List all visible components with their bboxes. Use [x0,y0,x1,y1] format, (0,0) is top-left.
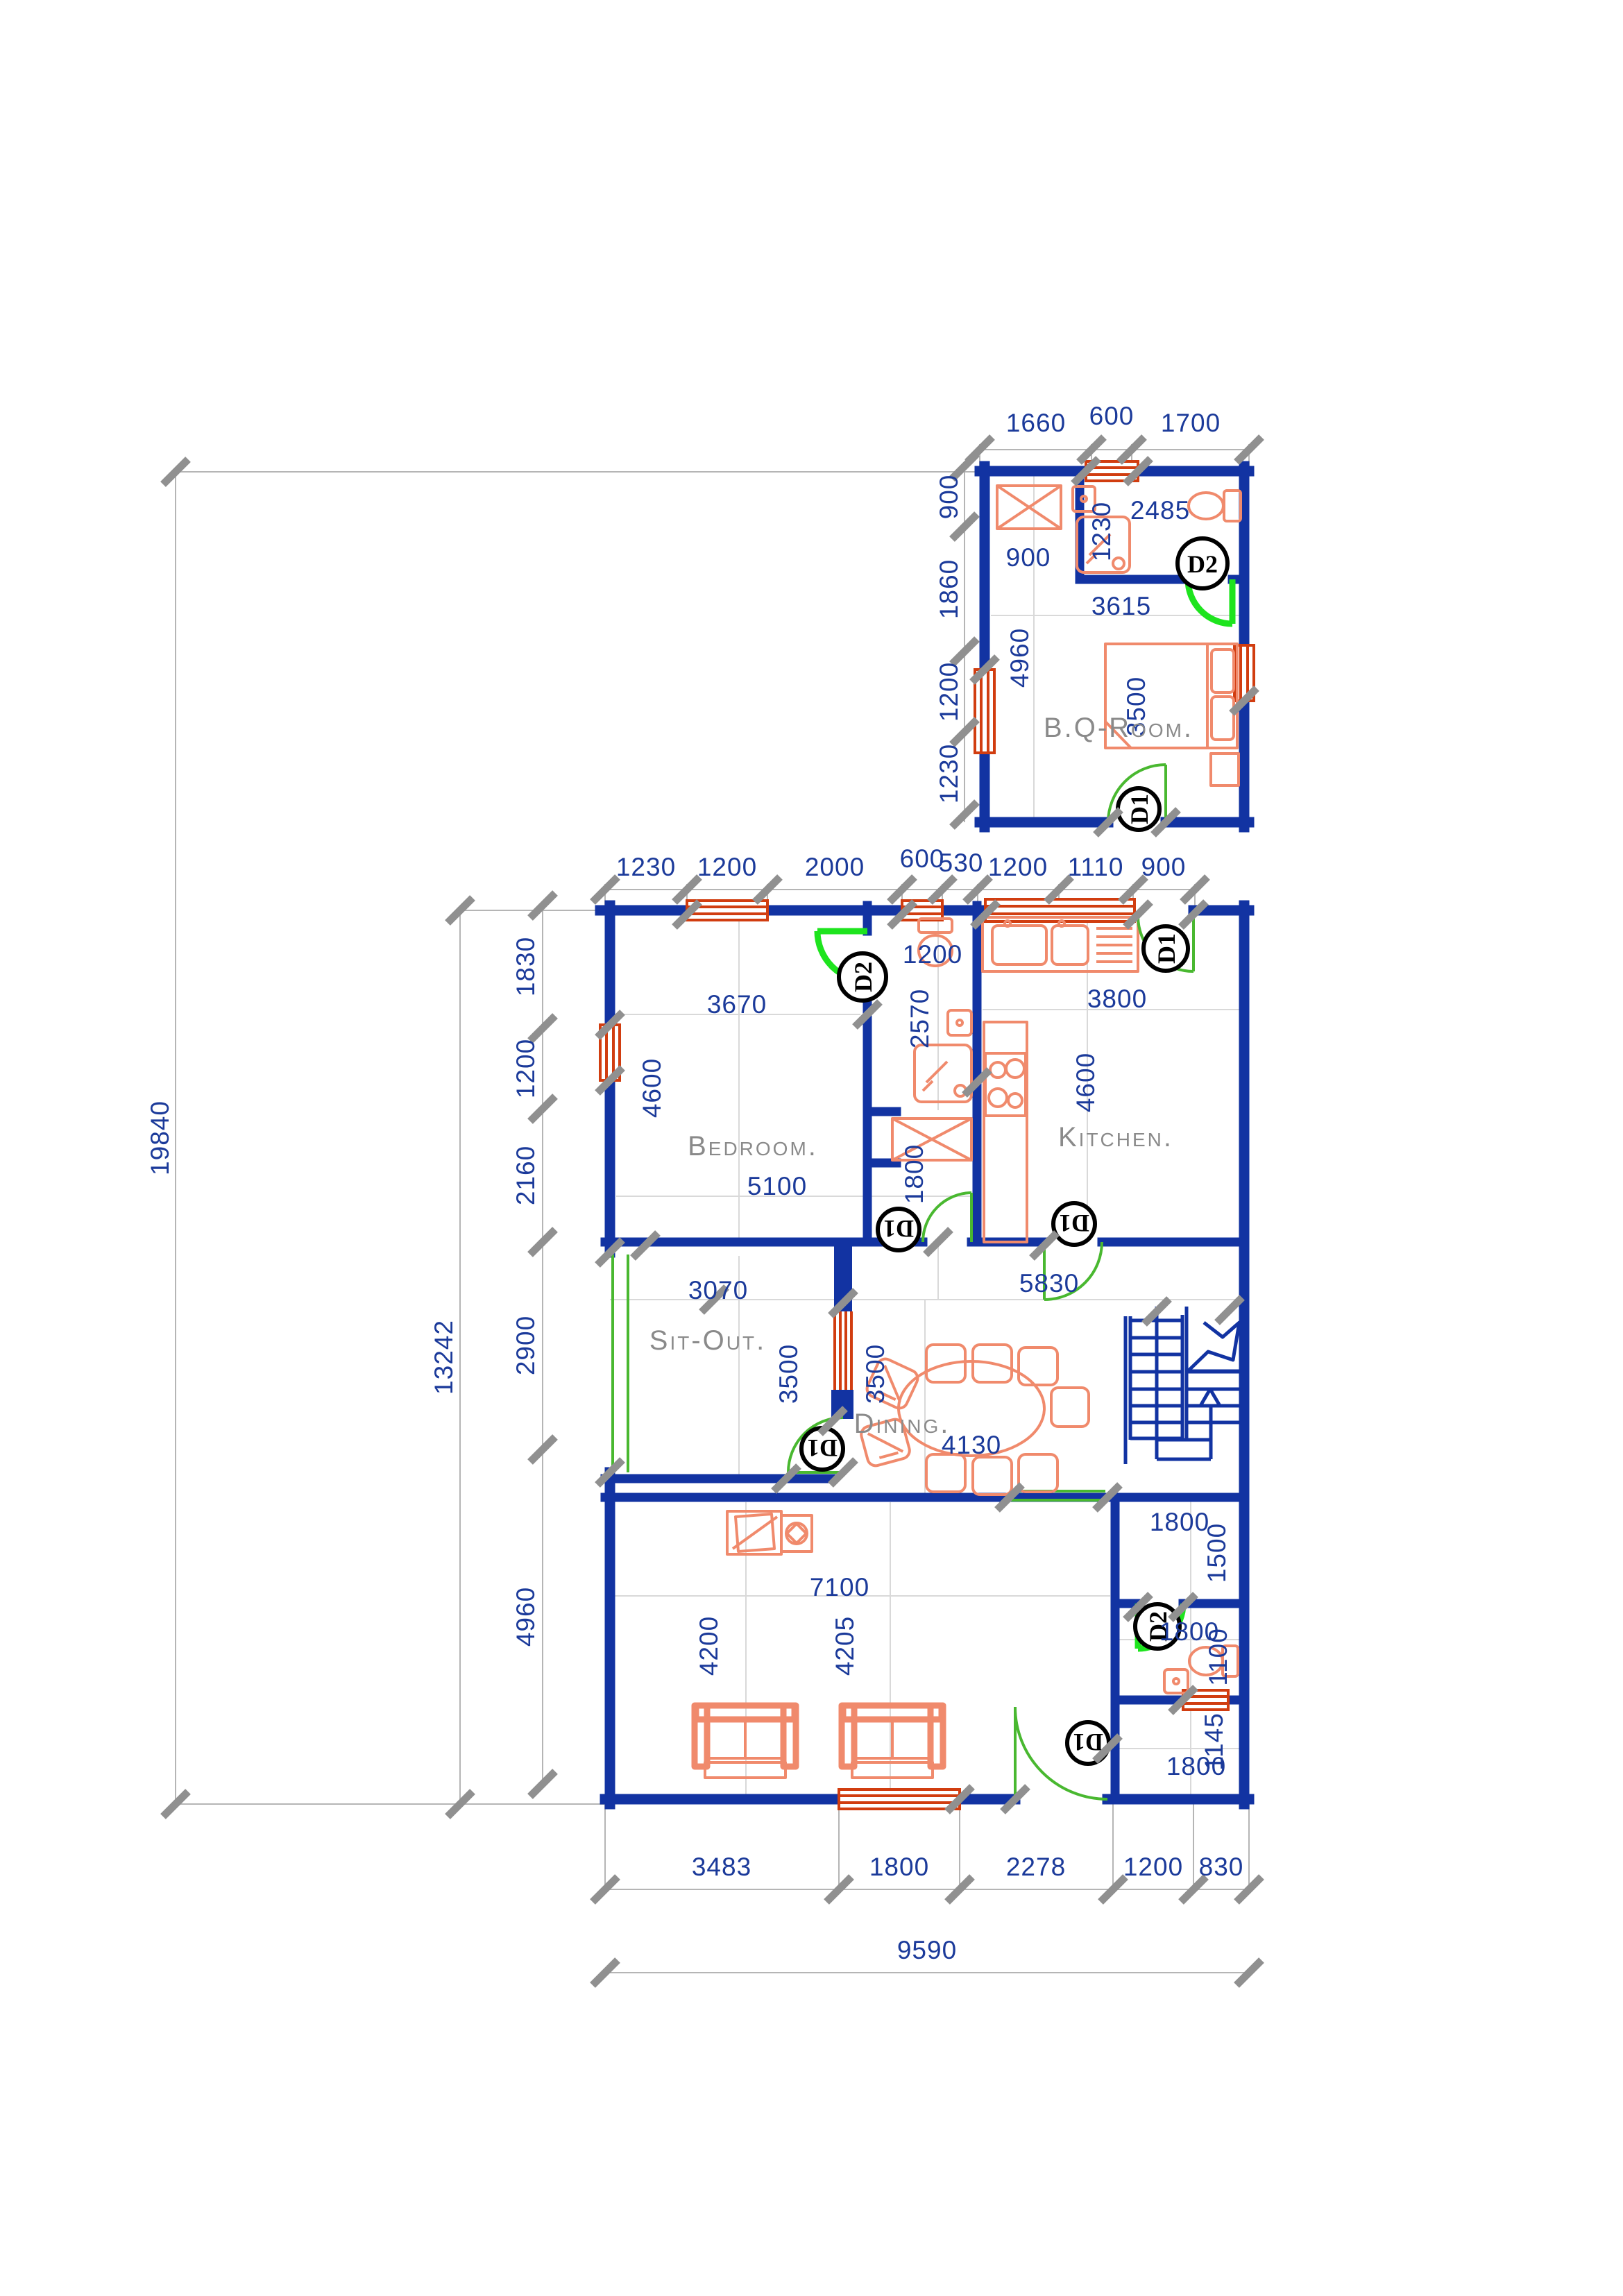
dim-label: 4600 [1071,1053,1100,1112]
door-tag: D1 [1125,794,1153,824]
kitchen-fixtures [983,917,1138,1242]
dim-label: 1200 [988,853,1048,881]
annex-left-window [975,670,994,753]
door-tag: D1 [807,1434,838,1462]
dim-label: 1800 [869,1853,929,1881]
dim-label: 1660 [1006,409,1066,437]
dim-label: 4960 [1005,628,1034,688]
living-bottom-window [839,1789,960,1809]
washbasin-icon [948,1010,971,1035]
dim-label: 1230 [1087,502,1116,561]
dim-label: 3670 [707,990,767,1019]
dim-label: 9590 [897,1936,957,1964]
dim-label: 4200 [695,1616,723,1676]
dim-label: 830 [1199,1853,1244,1881]
door-main-entrance: D1 [1015,1707,1109,1799]
stair-up-arrow [1200,1389,1220,1406]
door-tag: D1 [883,1215,914,1243]
closet-icon [997,486,1061,529]
dim-label: 1830 [511,937,540,996]
room-label-sitout: Sit-Out. [649,1325,766,1356]
dim-label: 1200 [903,940,962,969]
dim-label: 5100 [747,1172,807,1200]
toilet-icon [1189,491,1241,521]
door-tag: D1 [1153,933,1180,964]
dim-label: 4130 [942,1431,1001,1459]
staircase [1125,1307,1241,1464]
dim-label: 5830 [1019,1269,1079,1298]
room-label-kitchen: Kitchen. [1058,1122,1173,1153]
stair-break-arrow [1188,1323,1239,1371]
room-label-dining: Dining. [854,1409,951,1439]
dim-label: 3070 [688,1276,748,1304]
dim-label: 7100 [810,1573,869,1601]
dim-label: 900 [1141,853,1187,881]
chair-icon [926,1454,965,1492]
room-label-bq: B.Q-Room. [1044,713,1193,743]
dim-label: 3500 [861,1344,890,1404]
sitout-divider-window [835,1311,851,1390]
dim-label: 2160 [511,1146,540,1205]
chair-icon [1051,1388,1089,1427]
dim-label: 1200 [1123,1853,1183,1881]
dim-label: 1800 [1150,1508,1209,1536]
speaker-icon [781,1515,812,1551]
dim-label: 3483 [692,1853,751,1881]
dim-label: 2278 [1006,1853,1066,1881]
dim-label: 13242 [430,1320,458,1395]
floor-plan-page: D2 D1 D2 D1 D1 D1 D1 D2 [0,0,1623,2296]
dim-label: 900 [1006,543,1051,572]
dim-label: 900 [935,475,963,520]
door-tag: D2 [1187,550,1218,578]
nightstand-icon [1211,754,1239,785]
dim-label: 1200 [697,853,757,881]
stove-icon [984,1022,1027,1242]
tv-unit-icon [727,1511,781,1554]
sofa-icon [842,1706,943,1778]
dim-label: 1230 [935,744,963,803]
chair-icon [973,1457,1012,1495]
dim-label: 530 [939,849,984,877]
dim-label: 3615 [1091,592,1151,620]
chair-icon [1019,1454,1057,1492]
dim-label: 3800 [1087,985,1147,1013]
dim-label: 1700 [1161,409,1221,437]
door-tag: D2 [849,962,877,992]
dim-label: 4960 [511,1587,540,1647]
dim-label: 19840 [146,1100,174,1175]
dim-label: 4205 [831,1616,859,1676]
dim-label: 1110 [1068,853,1124,881]
door-tag: D1 [1059,1209,1089,1237]
dim-label: 2570 [906,989,934,1048]
dim-label: 1100 [1204,1628,1232,1686]
dim-label: 3500 [774,1344,803,1404]
dim-label: 2000 [805,853,865,881]
dim-label: 600 [1089,402,1135,430]
dim-label: 1200 [935,662,963,722]
dim-label: 2485 [1130,496,1190,525]
dim-label: 1800 [900,1144,928,1204]
sink-counter-icon [983,917,1138,971]
dim-label: 4600 [638,1058,666,1118]
door-annex-entry: D1 [1108,765,1166,830]
dim-label: 1230 [616,853,676,881]
floor-plan-canvas: D2 D1 D2 D1 D1 D1 D1 D2 [0,0,1623,2296]
door-annex-bath: D2 [1178,538,1232,624]
dim-label: 1860 [935,559,963,619]
door-bedroom: D2 [817,931,886,1001]
room-label-bedroom: Bedroom. [688,1131,818,1162]
dim-label: 1500 [1203,1523,1231,1583]
dim-label: 1200 [511,1039,540,1098]
dim-label: 2900 [511,1316,540,1375]
sitout-screen-lines [613,1255,628,1472]
chair-icon [1019,1347,1057,1385]
living-fixtures [695,1511,943,1778]
dim-label: 1145 [1200,1712,1228,1771]
